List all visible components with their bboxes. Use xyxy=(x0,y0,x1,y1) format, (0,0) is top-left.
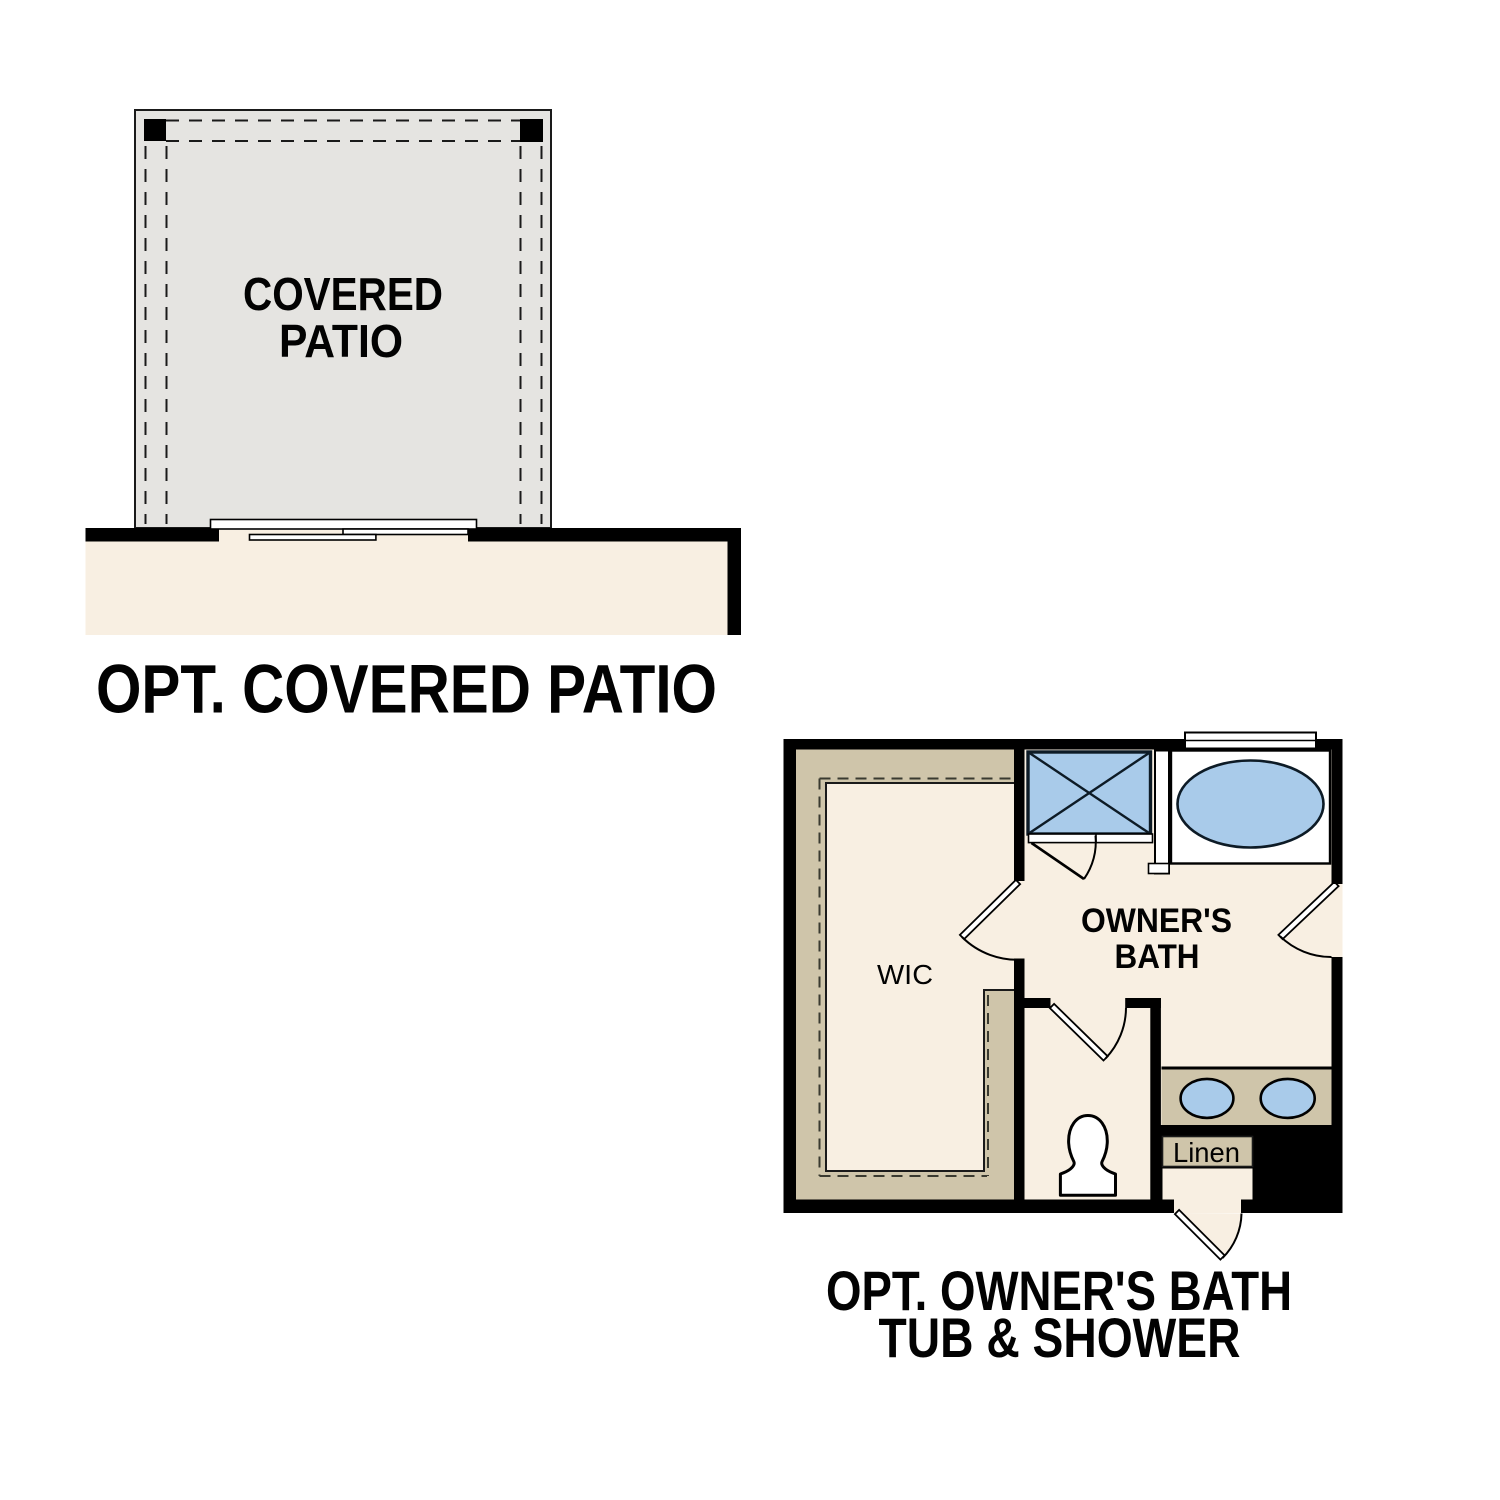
svg-text:OWNER'S: OWNER'S xyxy=(1081,902,1232,940)
svg-text:BATH: BATH xyxy=(1115,938,1200,976)
svg-text:PATIO: PATIO xyxy=(279,315,403,367)
svg-text:COVERED: COVERED xyxy=(243,268,443,320)
svg-text:Linen: Linen xyxy=(1173,1137,1240,1168)
svg-text:OPT. COVERED PATIO: OPT. COVERED PATIO xyxy=(96,651,717,728)
svg-text:TUB & SHOWER: TUB & SHOWER xyxy=(879,1306,1241,1369)
svg-text:WIC: WIC xyxy=(877,959,933,990)
